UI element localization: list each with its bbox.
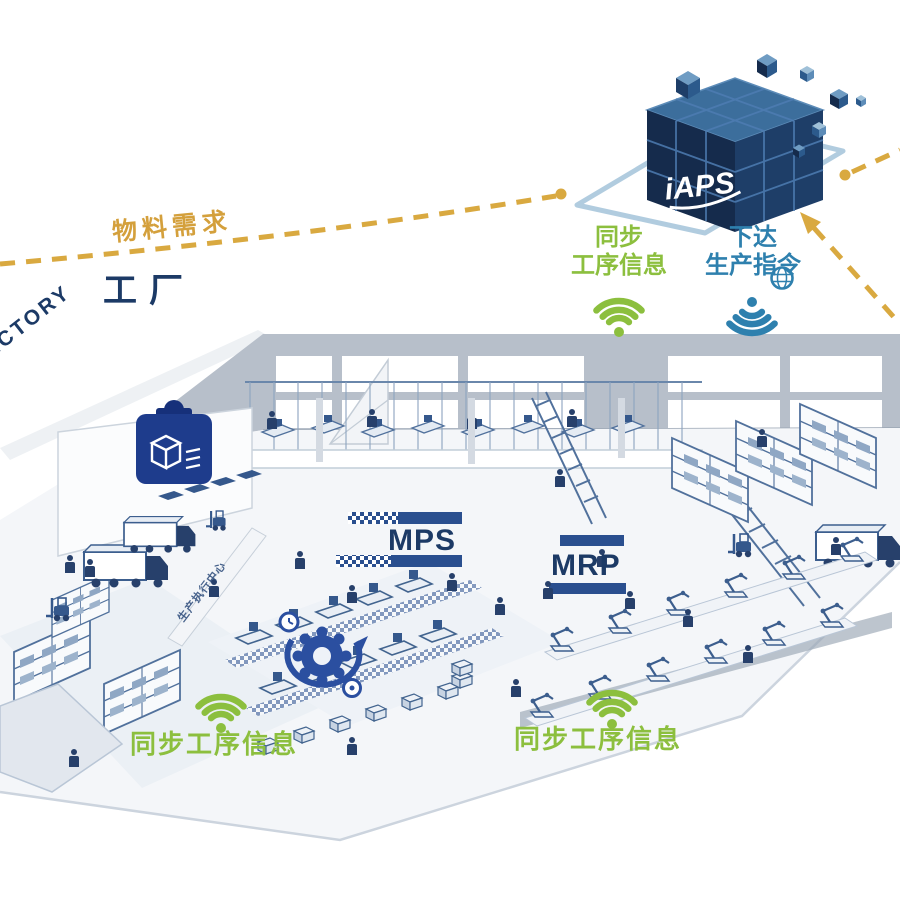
mrp-label: MRP bbox=[551, 549, 621, 584]
factory-illustration: iAPS bbox=[0, 0, 900, 900]
issue-line1: 下达 bbox=[696, 224, 810, 252]
wifi-up-icon-green-top bbox=[596, 301, 641, 337]
issue-instruction-label: 下达 生产指令 bbox=[696, 224, 810, 279]
sync-top-line1: 同步 bbox=[563, 224, 675, 252]
sync-process-top-label: 同步 工序信息 bbox=[563, 224, 675, 279]
factory-label-cn: 工厂 bbox=[103, 272, 195, 311]
sync-top-line2: 工序信息 bbox=[563, 252, 675, 280]
mps-label: MPS bbox=[388, 524, 456, 559]
material-demand-arrow bbox=[0, 196, 556, 264]
issue-line2: 生产指令 bbox=[696, 252, 810, 280]
wifi-down-icon-blue-top bbox=[729, 297, 774, 333]
sync-process-bottom-left-label: 同步工序信息 bbox=[130, 730, 298, 760]
iaps-cube: iAPS bbox=[577, 54, 866, 233]
smart-factory-diagram: iAPS bbox=[0, 0, 900, 900]
sync-process-bottom-right-label: 同步工序信息 bbox=[514, 725, 682, 755]
arrow-dot-left bbox=[556, 189, 567, 200]
